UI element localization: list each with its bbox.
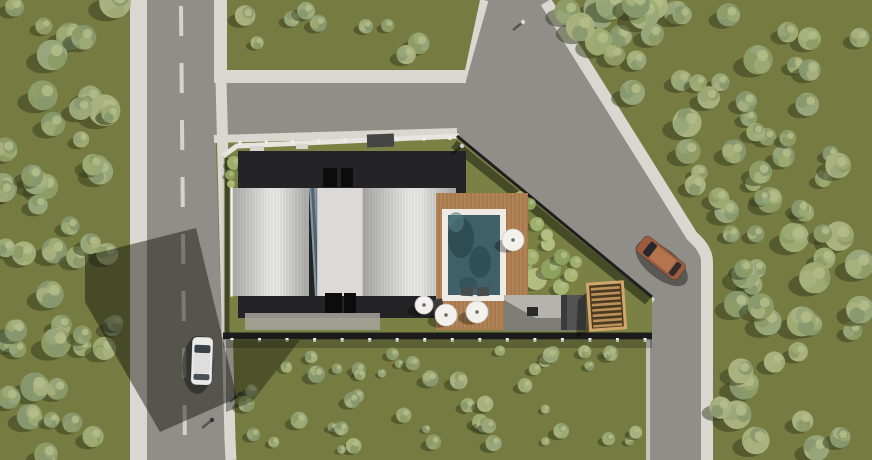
- top-grass-strip: [227, 0, 480, 70]
- roof-hatch-north-2: [341, 168, 353, 187]
- aerial-site-render: [0, 0, 872, 460]
- south-terrace: [245, 313, 380, 330]
- roof-hatch-south-1: [325, 293, 342, 313]
- pool-light-patch: [448, 212, 464, 232]
- parapet-mark-1: [250, 146, 264, 151]
- entrance-gate: [367, 134, 394, 148]
- pool-reflection-2: [469, 246, 491, 278]
- roof-hatch-north-1: [323, 168, 337, 187]
- left-road-sidewalk-east-top: [214, 0, 227, 76]
- barrel-roof-west: [231, 188, 309, 296]
- parapet-mark-2: [296, 144, 308, 149]
- sun-lounger-2: [477, 287, 489, 296]
- outdoor-kitchen-shade: [561, 295, 567, 330]
- barbecue: [527, 307, 538, 316]
- roof-outline: [231, 188, 232, 296]
- roof-center-strip: [317, 188, 363, 296]
- pergola: [587, 282, 625, 330]
- sun-lounger-1: [461, 287, 473, 297]
- site-plan-svg: [0, 0, 872, 460]
- junction-sidewalk: [214, 70, 466, 83]
- roof-hatch-south-2: [344, 293, 356, 313]
